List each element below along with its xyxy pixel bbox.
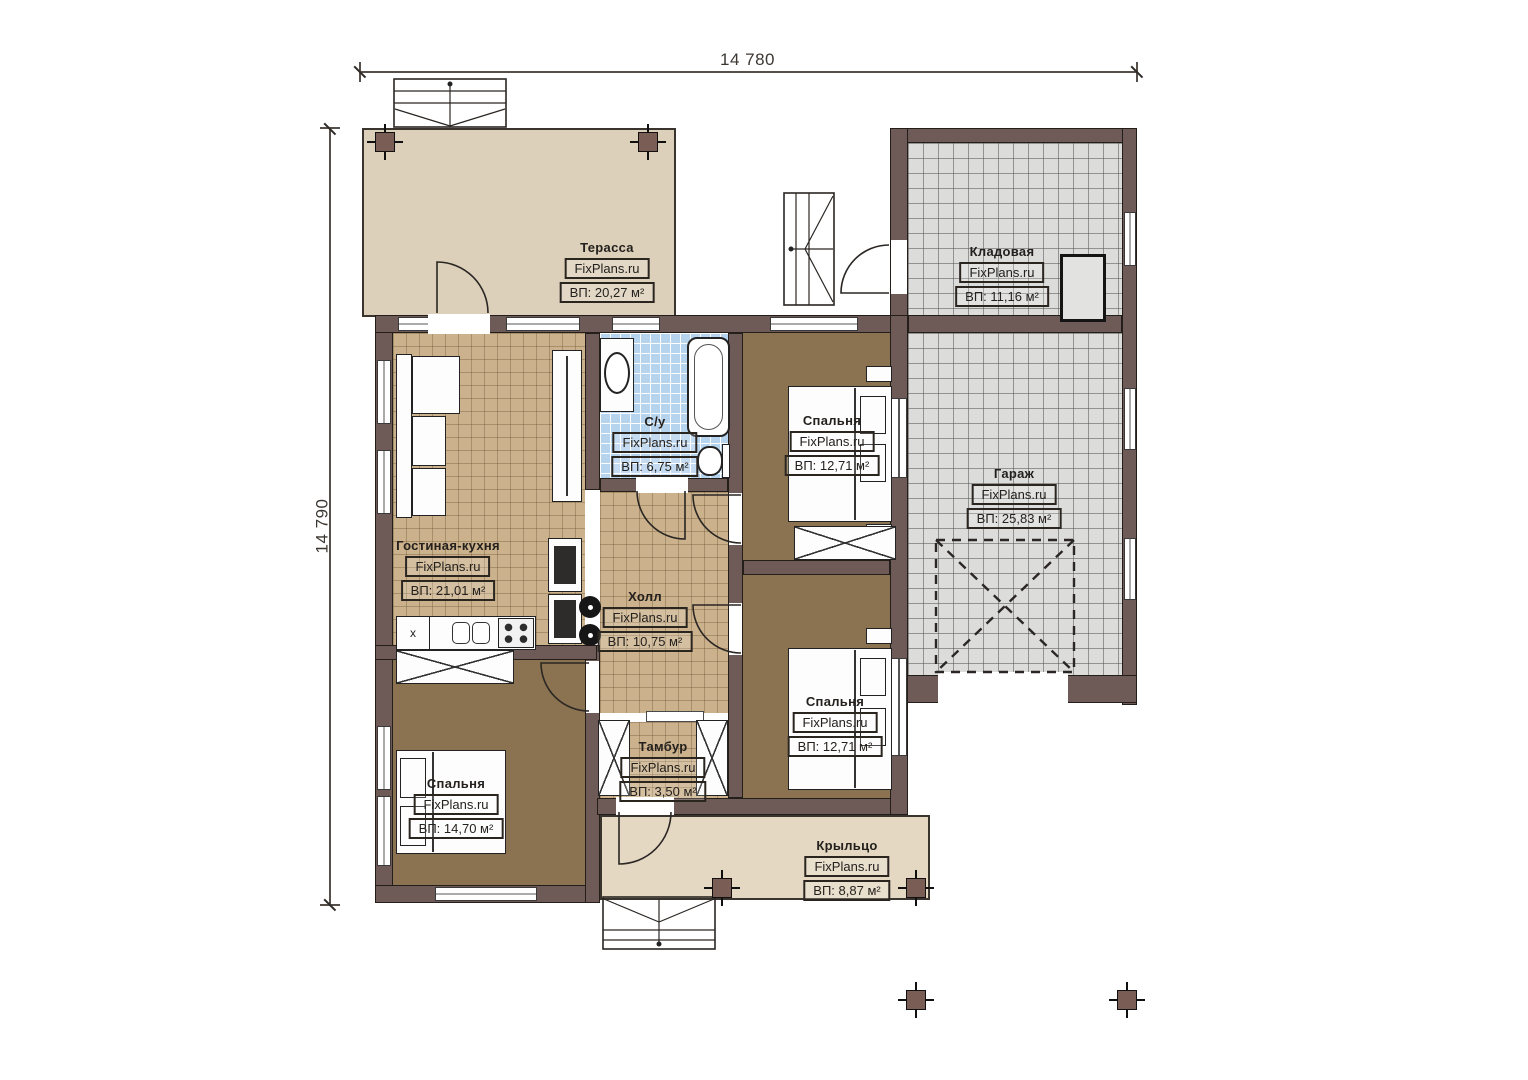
brand-text: FixPlans.ru: [802, 715, 867, 730]
wall-segment: [585, 333, 600, 490]
parking-cross-icon: [932, 536, 1078, 676]
area-box: ВП: 11,16 м²: [955, 286, 1049, 307]
area-text: ВП: 12,71 м²: [798, 739, 873, 754]
bedroom-bottom-door-opening: [586, 661, 599, 713]
wall-segment: [890, 128, 1137, 143]
bedroom-right-door-opening: [729, 603, 742, 655]
brand-text: FixPlans.ru: [415, 559, 480, 574]
watermark-box: FixPlans.ru: [612, 432, 697, 453]
brand-text: FixPlans.ru: [981, 487, 1046, 502]
toilet-tank-icon: [722, 444, 730, 478]
sofa-icon: [396, 354, 412, 518]
pillow-icon: [860, 658, 886, 696]
watermark-box: FixPlans.ru: [789, 431, 874, 452]
window: [612, 317, 660, 331]
window: [506, 317, 580, 331]
area-text: ВП: 25,83 м²: [977, 511, 1052, 526]
kitchen-cabinet-icon: x: [396, 616, 430, 650]
window: [377, 450, 391, 514]
room-name: Спальня: [803, 413, 861, 428]
room-label-bedroom-bottom: Спальня FixPlans.ru ВП: 14,70 м²: [409, 776, 504, 839]
dimension-line-top: [360, 71, 1137, 73]
window: [377, 360, 391, 424]
area-box: ВП: 10,75 м²: [598, 631, 693, 652]
area-text: ВП: 3,50 м²: [629, 784, 696, 799]
area-box: ВП: 14,70 м²: [409, 818, 504, 839]
terrace-door-opening: [428, 314, 490, 334]
area-text: ВП: 8,87 м²: [813, 883, 880, 898]
sofa-icon: [412, 416, 446, 466]
watermark-box: FixPlans.ru: [564, 258, 649, 279]
room-name: Гостиная-кухня: [396, 538, 500, 553]
column-marker-icon: [1109, 982, 1145, 1018]
room-label-living-kitchen: Гостиная-кухня FixPlans.ru ВП: 21,01 м²: [396, 538, 500, 601]
room-name: Холл: [628, 589, 662, 604]
room-label-bathroom: С/у FixPlans.ru ВП: 6,75 м²: [611, 414, 698, 477]
area-text: ВП: 21,01 м²: [411, 583, 486, 598]
area-text: ВП: 6,75 м²: [621, 459, 688, 474]
window: [377, 726, 391, 790]
brand-text: FixPlans.ru: [622, 435, 687, 450]
wardrobe-cross-icon: [396, 650, 514, 684]
room-label-storage: Кладовая FixPlans.ru ВП: 11,16 м²: [955, 244, 1049, 307]
watermark-box: FixPlans.ru: [413, 794, 498, 815]
window: [435, 887, 537, 901]
column-marker-icon: [898, 982, 934, 1018]
stairs-right-icon: [783, 192, 835, 306]
window: [1124, 538, 1136, 600]
watermark-box: FixPlans.ru: [405, 556, 490, 577]
room-label-porch: Крыльцо FixPlans.ru ВП: 8,87 м²: [803, 838, 890, 901]
wardrobe-door-line: [566, 356, 568, 496]
room-name: Тамбур: [639, 739, 688, 754]
window: [770, 317, 858, 331]
nightstand-icon: [866, 366, 892, 382]
sofa-icon: [412, 468, 446, 516]
wall-segment: [728, 333, 743, 798]
room-label-bedroom-top: Спальня FixPlans.ru ВП: 12,71 м²: [785, 413, 880, 476]
watermark-box: FixPlans.ru: [804, 856, 889, 877]
wardrobe-cross-icon: [794, 526, 896, 560]
area-text: ВП: 12,71 м²: [795, 458, 870, 473]
window: [1124, 388, 1136, 450]
room-name: Спальня: [806, 694, 864, 709]
room-name: Спальня: [427, 776, 485, 791]
area-text: ВП: 20,27 м²: [570, 285, 645, 300]
room-name: Крыльцо: [816, 838, 877, 853]
floor-plan-canvas: 14 780 14 790: [0, 0, 1528, 1080]
oven-front: [554, 600, 576, 638]
bathroom-door-opening: [636, 477, 688, 493]
room-name: Терасса: [580, 240, 634, 255]
room-label-terrace: Терасса FixPlans.ru ВП: 20,27 м²: [560, 240, 655, 303]
brand-text: FixPlans.ru: [969, 265, 1034, 280]
window: [891, 398, 907, 478]
watermark-box: FixPlans.ru: [959, 262, 1044, 283]
brand-text: FixPlans.ru: [799, 434, 864, 449]
sofa-icon: [412, 356, 460, 414]
watermark-box: FixPlans.ru: [792, 712, 877, 733]
storage-door-opening: [891, 240, 907, 294]
window: [1124, 212, 1136, 266]
area-box: ВП: 21,01 м²: [401, 580, 496, 601]
room-name: Кладовая: [970, 244, 1035, 259]
area-box: ВП: 3,50 м²: [619, 781, 706, 802]
area-box: ВП: 8,87 м²: [803, 880, 890, 901]
bedroom-top-door-opening: [729, 493, 742, 545]
kitchen-sink-icon: [452, 622, 470, 644]
brand-text: FixPlans.ru: [814, 859, 879, 874]
brand-text: FixPlans.ru: [630, 760, 695, 775]
stove-icon: [498, 618, 534, 648]
brand-text: FixPlans.ru: [423, 797, 488, 812]
toilet-icon: [697, 446, 723, 476]
wall-segment: [743, 560, 890, 575]
room-name: С/у: [644, 414, 665, 429]
wall-segment: [890, 128, 908, 333]
brand-text: FixPlans.ru: [612, 610, 677, 625]
room-label-tambour: Тамбур FixPlans.ru ВП: 3,50 м²: [619, 739, 706, 802]
nightstand-icon: [866, 628, 892, 644]
watermark-box: FixPlans.ru: [620, 757, 705, 778]
area-text: ВП: 11,16 м²: [965, 289, 1039, 304]
door-arc-icon: [841, 245, 889, 293]
window: [891, 658, 907, 756]
column-marker-icon: [704, 870, 740, 906]
column-marker-icon: [630, 124, 666, 160]
stairs-top-icon: [393, 78, 507, 128]
area-text: ВП: 10,75 м²: [608, 634, 683, 649]
fridge-front: [554, 546, 576, 584]
kitchen-sink-icon: [472, 622, 490, 644]
column-marker-icon: [898, 870, 934, 906]
area-box: ВП: 25,83 м²: [967, 508, 1062, 529]
column-marker-icon: [367, 124, 403, 160]
room-name: Гараж: [994, 466, 1034, 481]
area-text: ВП: 14,70 м²: [419, 821, 494, 836]
room-label-hall: Холл FixPlans.ru ВП: 10,75 м²: [598, 589, 693, 652]
window: [377, 796, 391, 866]
area-box: ВП: 12,71 м²: [785, 455, 880, 476]
sink-icon: [604, 352, 630, 394]
watermark-box: FixPlans.ru: [971, 484, 1056, 505]
room-label-bedroom-right: Спальня FixPlans.ru ВП: 12,71 м²: [788, 694, 883, 757]
garage-gate-opening: [938, 672, 1068, 706]
watermark-box: FixPlans.ru: [602, 607, 687, 628]
storage-shelf-icon: [1060, 254, 1106, 322]
dimension-height-label: 14 790: [313, 499, 333, 554]
room-label-garage: Гараж FixPlans.ru ВП: 25,83 м²: [967, 466, 1062, 529]
area-box: ВП: 12,71 м²: [788, 736, 883, 757]
brand-text: FixPlans.ru: [574, 261, 639, 276]
dimension-width-label: 14 780: [720, 50, 775, 70]
stairs-bottom-icon: [602, 896, 716, 950]
area-box: ВП: 6,75 м²: [611, 456, 698, 477]
area-box: ВП: 20,27 м²: [560, 282, 655, 303]
